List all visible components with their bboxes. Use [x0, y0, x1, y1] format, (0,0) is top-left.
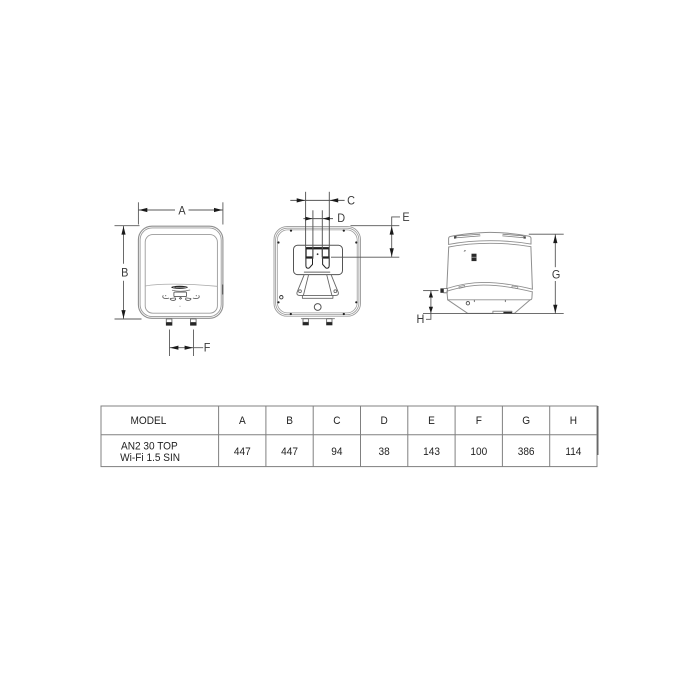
- svg-text:F: F: [476, 414, 483, 427]
- svg-text:D: D: [337, 212, 345, 226]
- svg-text:A: A: [239, 414, 246, 427]
- svg-text:Wi-Fi 1.5 SIN: Wi-Fi 1.5 SIN: [120, 452, 180, 465]
- svg-text:G: G: [522, 414, 530, 427]
- svg-text:C: C: [347, 194, 355, 208]
- svg-text:D: D: [381, 414, 388, 427]
- svg-text:447: 447: [234, 446, 251, 459]
- svg-text:B: B: [286, 414, 293, 427]
- svg-text:A: A: [178, 204, 185, 218]
- svg-text:H: H: [570, 414, 577, 427]
- svg-text:H: H: [416, 312, 424, 326]
- svg-text:G: G: [552, 268, 560, 282]
- svg-text:F: F: [204, 341, 211, 355]
- svg-text:C: C: [333, 414, 340, 427]
- svg-text:38: 38: [379, 446, 390, 459]
- svg-text:E: E: [402, 211, 409, 225]
- svg-text:114: 114: [565, 446, 581, 459]
- svg-text:B: B: [121, 266, 128, 280]
- svg-text:MODEL: MODEL: [130, 414, 166, 427]
- svg-text:94: 94: [331, 446, 342, 459]
- svg-text:143: 143: [423, 446, 440, 459]
- svg-text:100: 100: [470, 446, 487, 459]
- svg-text:E: E: [428, 414, 435, 427]
- svg-text:386: 386: [518, 446, 535, 459]
- svg-text:447: 447: [281, 446, 298, 459]
